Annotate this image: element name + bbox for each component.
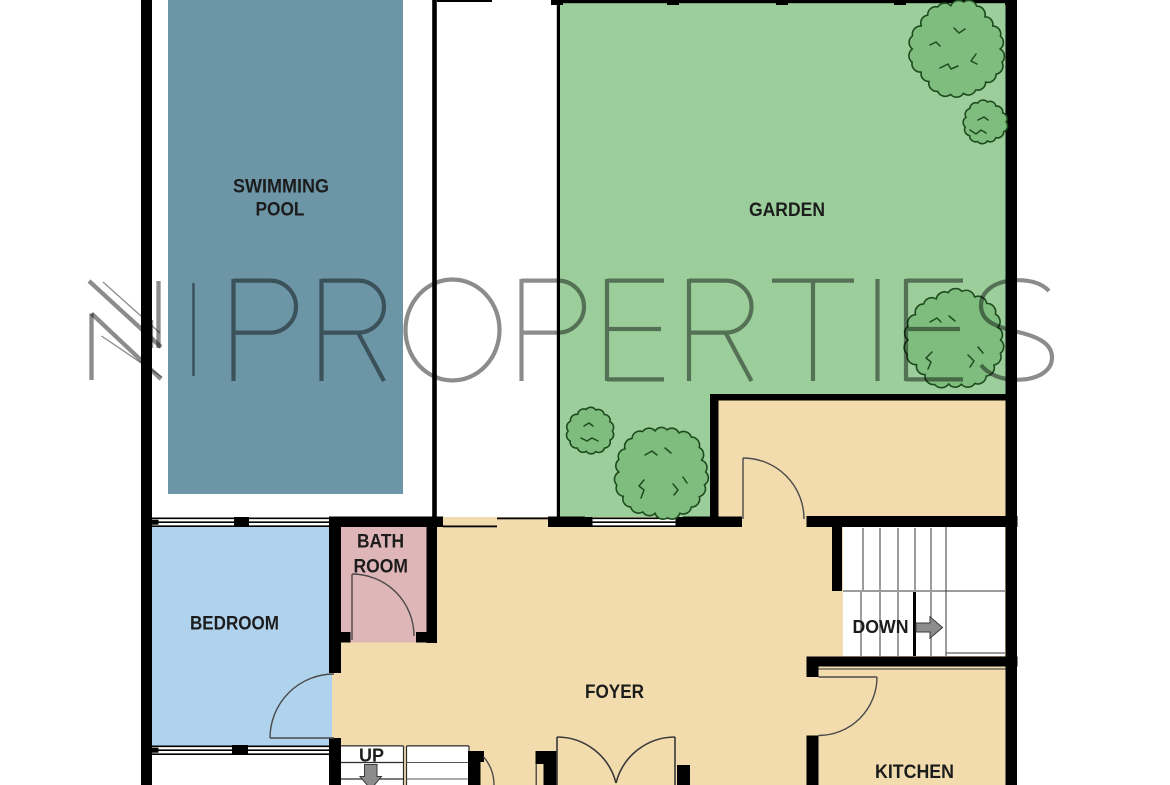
svg-text:UP: UP — [359, 746, 384, 766]
svg-text:ROOM: ROOM — [354, 557, 409, 578]
svg-text:KITCHEN: KITCHEN — [875, 762, 954, 783]
svg-text:DOWN: DOWN — [853, 617, 909, 637]
svg-text:SWIMMING: SWIMMING — [233, 177, 329, 198]
svg-text:POOL: POOL — [256, 200, 305, 221]
svg-text:FOYER: FOYER — [585, 682, 644, 703]
svg-text:BATH: BATH — [357, 532, 404, 553]
svg-text:GARDEN: GARDEN — [749, 200, 825, 221]
svg-text:BEDROOM: BEDROOM — [190, 614, 279, 635]
